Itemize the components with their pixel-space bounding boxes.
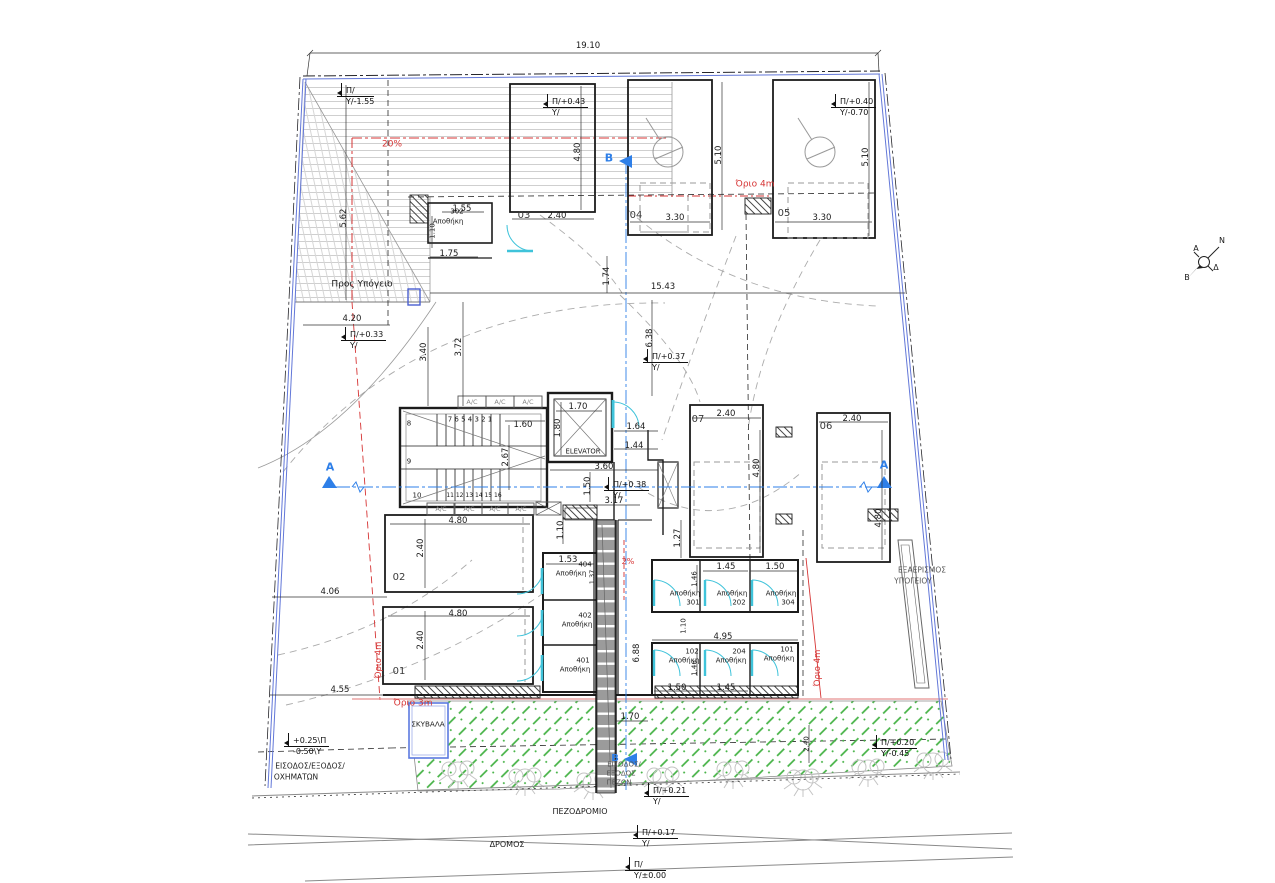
parking-spot-dashed-outlines [523, 183, 885, 682]
site-plan-drawing [0, 0, 1275, 883]
garden [408, 701, 952, 791]
road-lines [248, 772, 1013, 881]
storage-block-east [652, 560, 798, 695]
existing-tree-05 [798, 118, 835, 167]
site-plan-page: 19.105.6220%Προς Υπόγειο1.55302Αποθήκη1.… [0, 0, 1275, 883]
staircase [400, 408, 547, 507]
compass-icon [1186, 247, 1219, 280]
entrance-lobby [596, 430, 678, 535]
basement-vent-shaft [898, 540, 929, 688]
garbage-enclosure [409, 703, 448, 758]
columns [415, 198, 898, 698]
elevator [548, 393, 639, 462]
storage-column-west [517, 553, 597, 692]
